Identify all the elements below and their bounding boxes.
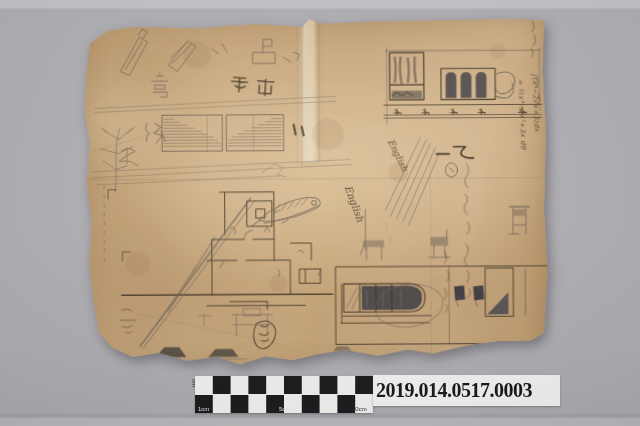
scale-tick-10cm: 10cm bbox=[352, 406, 367, 412]
scale-tick-1cm: 1cm bbox=[198, 406, 209, 412]
catalog-label: 2019.014.0517.0003 bbox=[373, 375, 560, 406]
handwriting-inverted-caption bbox=[231, 77, 274, 96]
paper-sheet-wrap: English English ∫(x²−2√x+3)dx = ⅔x³−2x²+… bbox=[76, 11, 552, 373]
scale-unit-label: cm bbox=[191, 379, 197, 387]
photo-background: English English ∫(x²−2√x+3)dx = ⅔x³−2x²+… bbox=[0, 0, 640, 426]
sketch-sofa-frame bbox=[335, 266, 549, 344]
handwriting-scribble-char bbox=[119, 147, 137, 165]
handwriting-formula-left: ∫(x²+2x+3)dx bbox=[86, 291, 94, 345]
sketch-leaf-study bbox=[252, 197, 321, 226]
handwriting-char-high bbox=[152, 73, 168, 97]
sketch-drawing bbox=[76, 11, 552, 371]
sketch-hatched-panels bbox=[162, 114, 304, 151]
scale-tick-5cm: 5cm bbox=[279, 406, 290, 412]
sketch-chair-studies bbox=[360, 207, 529, 260]
sketch-dashed-guide bbox=[104, 186, 131, 266]
sketch-bamboo-plant bbox=[101, 127, 135, 191]
catalog-number: 2019.014.0517.0003 bbox=[373, 379, 532, 402]
sketch-paper: English English ∫(x²−2√x+3)dx = ⅔x³−2x²+… bbox=[76, 11, 552, 373]
scale-bar: 1cm 5cm 10cm bbox=[195, 376, 373, 413]
sketch-floor-plan bbox=[121, 192, 332, 311]
